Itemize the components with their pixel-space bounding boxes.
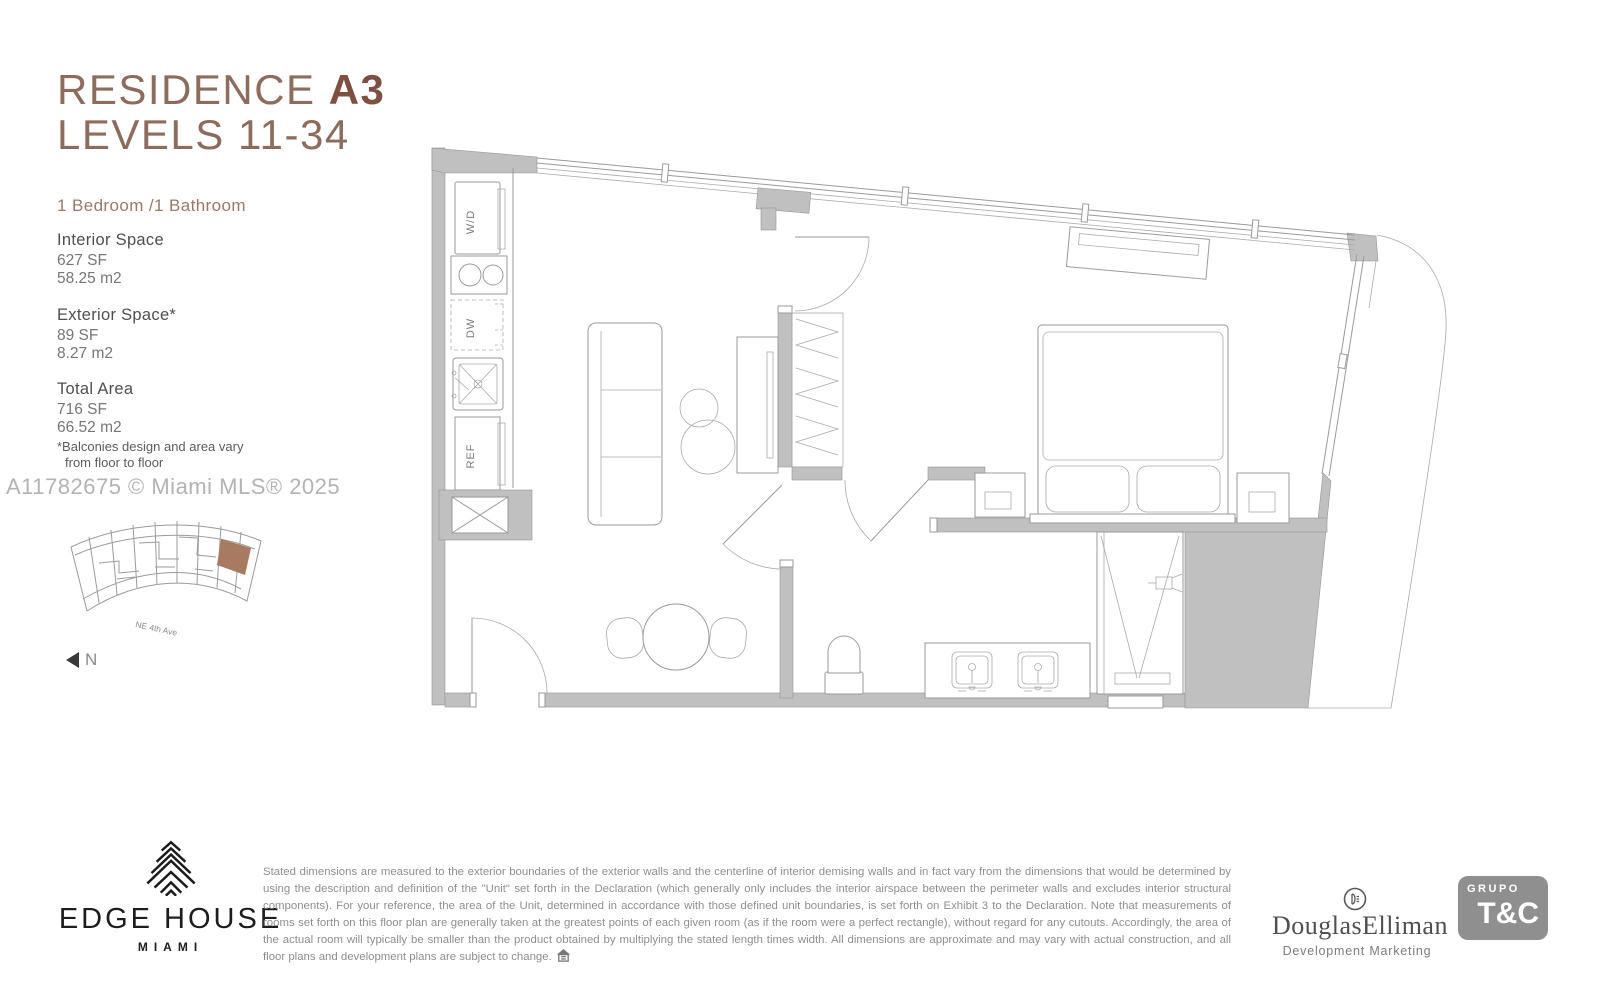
exterior-walls bbox=[432, 148, 1378, 708]
shower bbox=[1097, 532, 1183, 708]
stat-m2: 8.27 m2 bbox=[57, 345, 176, 363]
vanity bbox=[925, 643, 1090, 698]
svg-text:REF: REF bbox=[465, 444, 477, 469]
hallway-door bbox=[723, 485, 782, 569]
douglas-elliman-mark-icon bbox=[1343, 887, 1367, 911]
edge-house-name: EDGE HOUSE bbox=[48, 903, 293, 936]
unit-floorplan: W/D DW REF bbox=[425, 140, 1455, 715]
disclaimer-text: Stated dimensions are measured to the ex… bbox=[263, 866, 1231, 963]
stat-sf: 627 SF bbox=[57, 252, 176, 270]
title-line2: LEVELS 11-34 bbox=[57, 113, 385, 158]
grupo-label: GRUPO bbox=[1467, 883, 1539, 895]
title-line1: RESIDENCE A3 bbox=[57, 68, 385, 113]
title-residence: RESIDENCE bbox=[57, 66, 329, 113]
floorplan-sheet: { "header": { "title_regular": "RESIDENC… bbox=[0, 0, 1600, 995]
stat-label: Interior Space bbox=[57, 231, 176, 250]
bed-bath-config: 1 Bedroom /1 Bathroom bbox=[57, 196, 246, 216]
edge-house-chevron-icon bbox=[135, 840, 207, 896]
area-stats: Interior Space 627 SF 58.25 m2 Exterior … bbox=[57, 231, 176, 455]
edge-house-city: MIAMI bbox=[48, 940, 293, 954]
douglas-elliman-subtitle: Development Marketing bbox=[1272, 944, 1442, 958]
north-label: N bbox=[85, 650, 97, 670]
cooktop bbox=[451, 256, 507, 294]
tc-label: T&C bbox=[1467, 897, 1539, 931]
stat-m2: 66.52 m2 bbox=[57, 419, 176, 437]
entry-door bbox=[472, 618, 547, 693]
north-indicator: N bbox=[66, 650, 97, 670]
edge-house-logo: EDGE HOUSE MIAMI bbox=[48, 840, 293, 954]
stat-sf: 89 SF bbox=[57, 327, 176, 345]
svg-text:W/D: W/D bbox=[465, 210, 477, 234]
douglas-elliman-logo: DouglasElliman Development Marketing bbox=[1272, 887, 1442, 958]
footnote-line2: from floor to floor bbox=[57, 455, 243, 471]
bed bbox=[1030, 325, 1235, 523]
nightstand-left bbox=[975, 473, 1025, 517]
nightstand-right bbox=[1237, 473, 1289, 523]
walk-in-closet bbox=[792, 313, 843, 467]
equal-housing-icon bbox=[556, 948, 571, 963]
page-title: RESIDENCE A3 LEVELS 11-34 bbox=[57, 68, 385, 158]
building-keyplan: NE 4th Ave bbox=[55, 515, 280, 650]
svg-text:DW: DW bbox=[465, 318, 477, 338]
tv-console bbox=[737, 337, 778, 473]
stat-label: Total Area bbox=[57, 380, 176, 399]
north-arrow-icon bbox=[66, 652, 80, 668]
refrigerator: REF bbox=[455, 417, 505, 490]
side-table-plant bbox=[680, 389, 735, 474]
window-wall-top bbox=[537, 158, 1355, 250]
footnote-line1: *Balconies design and area vary bbox=[57, 439, 243, 455]
sofa bbox=[588, 323, 662, 525]
total-area-stat: Total Area 716 SF 66.52 m2 bbox=[57, 380, 176, 438]
kitchen-sink bbox=[452, 358, 503, 410]
stat-label: Exterior Space* bbox=[57, 306, 176, 325]
keyplan-highlighted-unit bbox=[217, 539, 251, 575]
toilet bbox=[825, 636, 863, 694]
bathroom-door bbox=[845, 480, 928, 541]
keyplan-street-label: NE 4th Ave bbox=[135, 619, 179, 638]
washer-dryer: W/D bbox=[455, 182, 505, 254]
balcony-outline bbox=[1304, 235, 1446, 708]
interior-space-stat: Interior Space 627 SF 58.25 m2 bbox=[57, 231, 176, 289]
dining-table bbox=[605, 604, 748, 670]
shaft bbox=[439, 490, 532, 540]
douglas-elliman-name: DouglasElliman bbox=[1272, 911, 1448, 941]
grupo-tc-logo: GRUPO T&C bbox=[1458, 876, 1548, 940]
bedroom-door bbox=[795, 237, 869, 311]
exterior-space-stat: Exterior Space* 89 SF 8.27 m2 bbox=[57, 306, 176, 364]
window-wall-right bbox=[1322, 254, 1364, 476]
stat-sf: 716 SF bbox=[57, 401, 176, 419]
kitchen: W/D DW REF bbox=[439, 168, 532, 540]
balcony-footnote: *Balconies design and area vary from flo… bbox=[57, 439, 243, 472]
title-unit-code: A3 bbox=[329, 66, 386, 113]
mls-watermark: A11782675 © Miami MLS® 2025 bbox=[6, 474, 340, 500]
dishwasher: DW bbox=[451, 300, 503, 350]
stat-m2: 58.25 m2 bbox=[57, 270, 176, 288]
legal-disclaimer: Stated dimensions are measured to the ex… bbox=[263, 864, 1231, 966]
